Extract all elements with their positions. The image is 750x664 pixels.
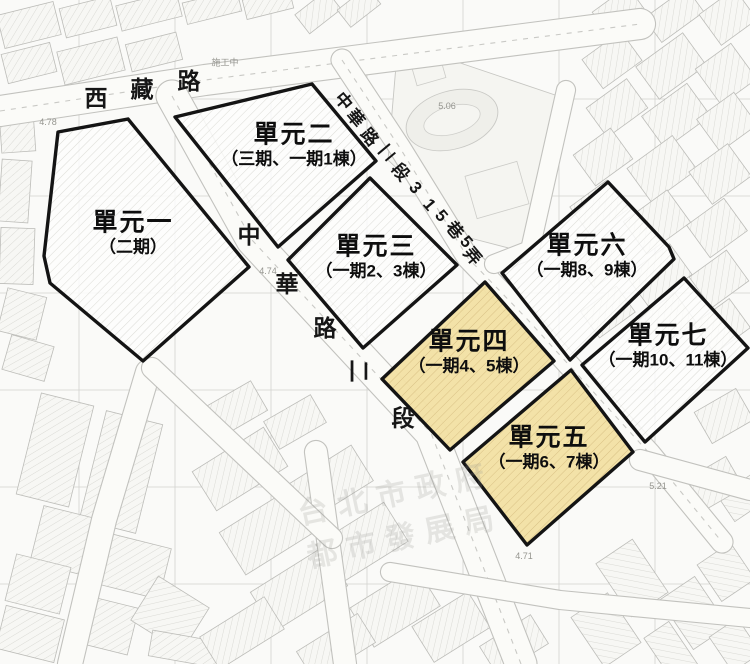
road-label-xizang: 西	[85, 79, 108, 113]
road-label-xizang: 藏	[131, 70, 154, 104]
map-annotation: 4.71	[515, 551, 533, 561]
road-label-zhonghua: 華	[276, 265, 299, 299]
unit-3-subtitle: （一期2、3棟）	[316, 261, 437, 283]
map-annotation: 5.21	[649, 481, 667, 491]
road-label-xizang: 路	[178, 62, 201, 96]
label-unit-1: 單元一（二期）	[92, 210, 173, 259]
map-annotation: 施工中	[211, 56, 238, 69]
map-annotation: 4.74	[259, 266, 277, 276]
road-label-zhonghua: 段	[392, 399, 415, 433]
unit-6-title: 單元六	[527, 233, 648, 260]
road-label-zhonghua: 路	[314, 309, 337, 343]
map-annotation: 5.06	[438, 101, 456, 111]
map-annotation: 4.78	[39, 117, 57, 127]
label-unit-3: 單元三（一期2、3棟）	[316, 234, 437, 283]
unit-5-title: 單元五	[489, 425, 610, 452]
unit-7-subtitle: （一期10、11棟）	[599, 350, 738, 372]
unit-5-subtitle: （一期6、7棟）	[489, 452, 610, 474]
road-label-zhonghua: 中	[238, 216, 261, 250]
label-unit-5: 單元五（一期6、7棟）	[489, 425, 610, 474]
unit-2-title: 單元二	[221, 122, 366, 149]
label-unit-7: 單元七（一期10、11棟）	[599, 323, 738, 372]
unit-7-title: 單元七	[599, 323, 738, 350]
unit-2-subtitle: （三期、一期1棟）	[221, 149, 366, 171]
label-unit-6: 單元六（一期8、9棟）	[527, 233, 648, 282]
unit-1-subtitle: （二期）	[92, 237, 173, 259]
label-unit-4: 單元四（一期4、5棟）	[409, 329, 530, 378]
urban-renewal-unit-map: 單元一（二期）單元二（三期、一期1棟）單元三（一期2、3棟）單元四（一期4、5棟…	[0, 0, 750, 664]
label-unit-2: 單元二（三期、一期1棟）	[221, 122, 366, 171]
road-label-zhonghua: 二	[344, 360, 378, 383]
unit-4-title: 單元四	[409, 329, 530, 356]
unit-1-title: 單元一	[92, 210, 173, 237]
unit-3-title: 單元三	[316, 234, 437, 261]
unit-4-subtitle: （一期4、5棟）	[409, 356, 530, 378]
unit-6-subtitle: （一期8、9棟）	[527, 260, 648, 282]
